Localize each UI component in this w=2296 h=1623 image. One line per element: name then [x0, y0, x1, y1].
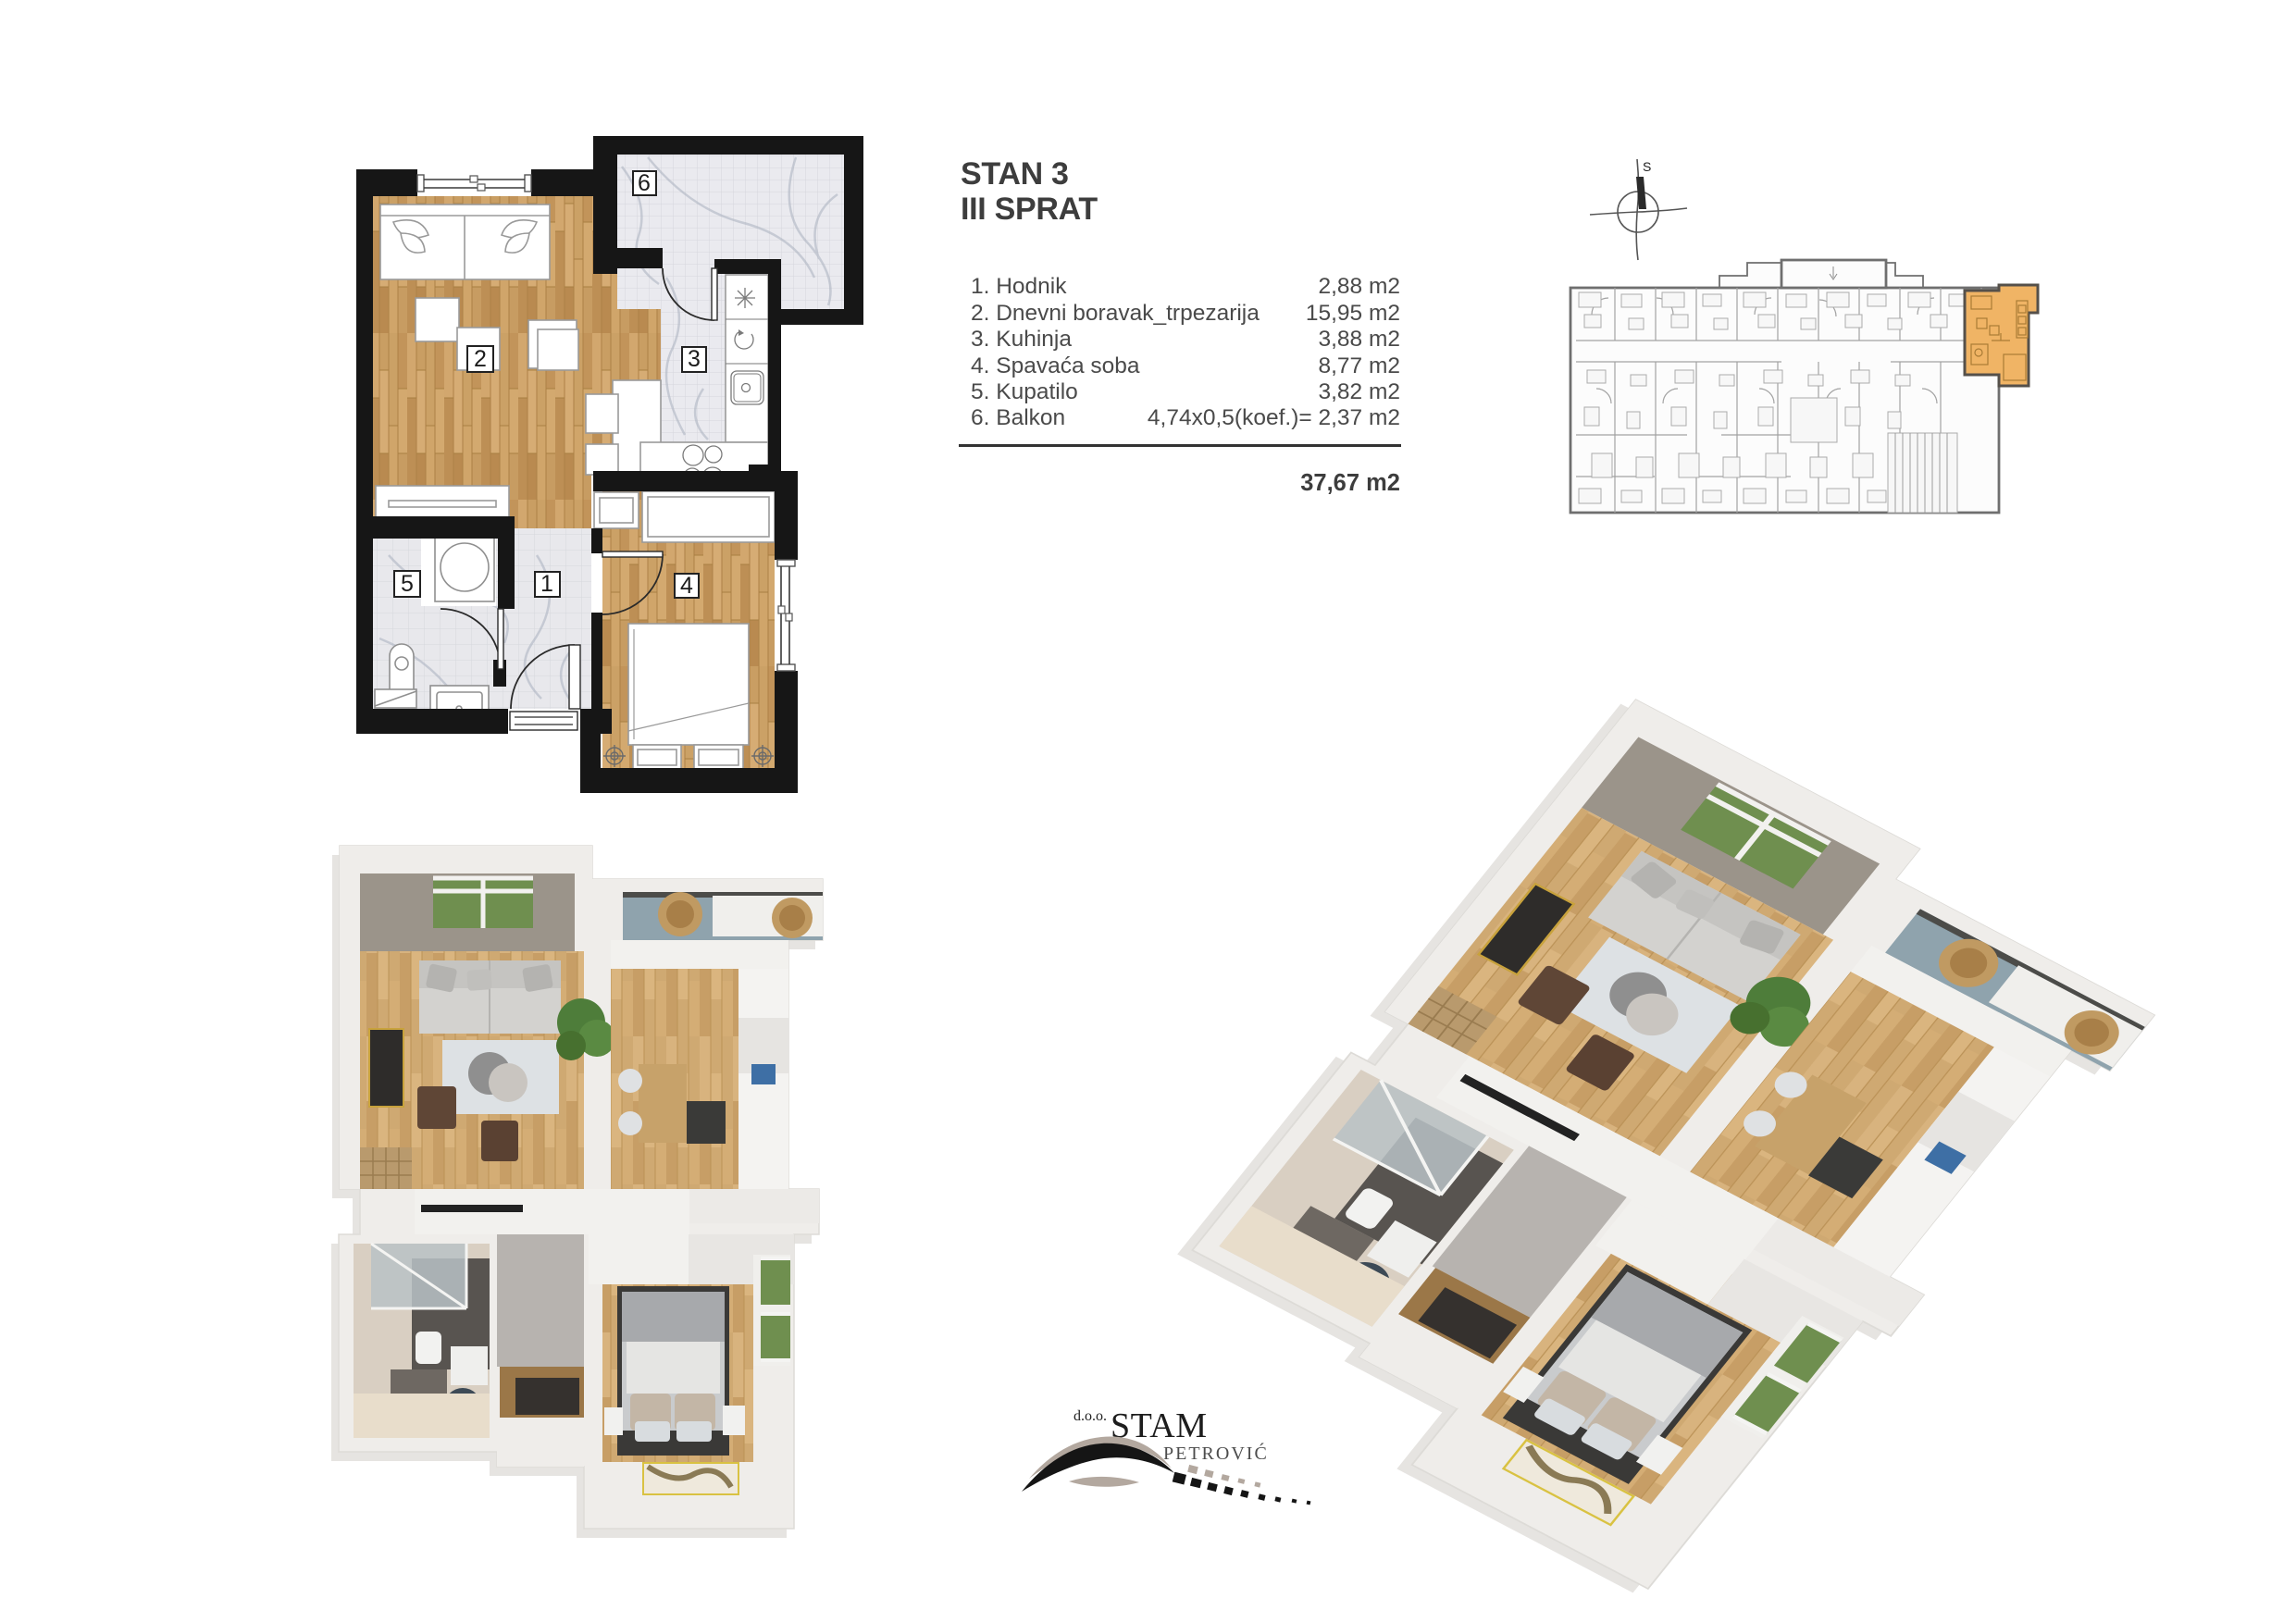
- svg-text:2. Dnevni boravak_trpezarija: 2. Dnevni boravak_trpezarija: [971, 301, 1260, 326]
- svg-text:3,82 m2: 3,82 m2: [1318, 379, 1400, 404]
- svg-text:4. Spavaća soba: 4. Spavaća soba: [971, 353, 1140, 378]
- svg-text:3: 3: [688, 346, 701, 372]
- svg-text:2,88 m2: 2,88 m2: [1318, 274, 1400, 299]
- svg-text:2: 2: [474, 346, 487, 372]
- svg-text:1: 1: [540, 571, 553, 597]
- svg-text:4: 4: [680, 573, 693, 599]
- svg-text:6. Balkon: 6. Balkon: [971, 405, 1065, 430]
- svg-text:III SPRAT: III SPRAT: [961, 192, 1098, 227]
- svg-text:3,88 m2: 3,88 m2: [1318, 327, 1400, 352]
- svg-text:S: S: [1643, 159, 1651, 174]
- svg-text:d.o.o.: d.o.o.: [1074, 1408, 1107, 1424]
- svg-text:3. Kuhinja: 3. Kuhinja: [971, 327, 1072, 352]
- svg-text:37,67 m2: 37,67 m2: [1300, 470, 1400, 496]
- svg-text:6: 6: [638, 170, 651, 196]
- svg-text:1. Hodnik: 1. Hodnik: [971, 274, 1067, 299]
- svg-text:4,74x0,5(koef.)= 2,37 m2: 4,74x0,5(koef.)= 2,37 m2: [1148, 405, 1400, 430]
- svg-text:5. Kupatilo: 5. Kupatilo: [971, 379, 1078, 404]
- svg-text:PETROVIĆ: PETROVIĆ: [1163, 1442, 1269, 1464]
- svg-text:15,95 m2: 15,95 m2: [1306, 301, 1400, 326]
- svg-text:8,77 m2: 8,77 m2: [1318, 353, 1400, 378]
- svg-text:5: 5: [401, 571, 414, 597]
- svg-text:STAN 3: STAN 3: [961, 156, 1069, 192]
